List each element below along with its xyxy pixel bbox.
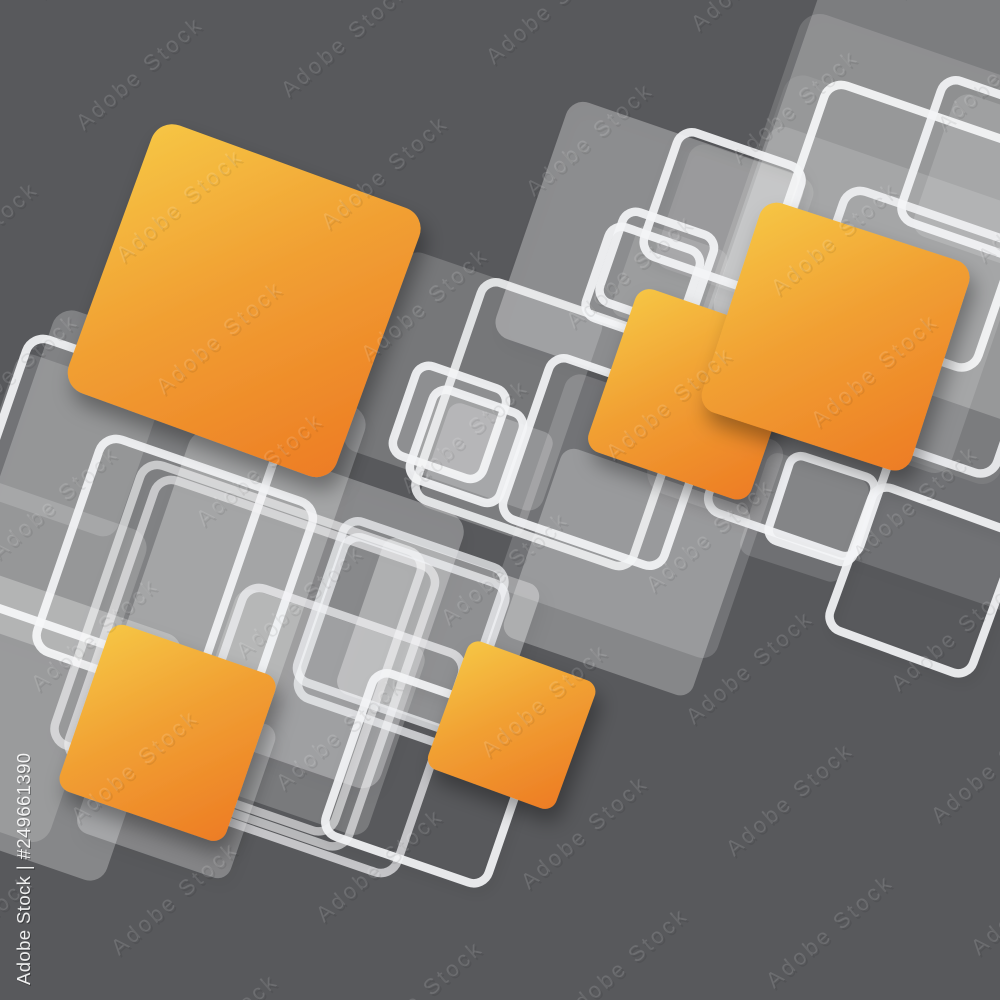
svg-text:Adobe Stock | #249661390: Adobe Stock | #249661390 — [13, 753, 34, 985]
